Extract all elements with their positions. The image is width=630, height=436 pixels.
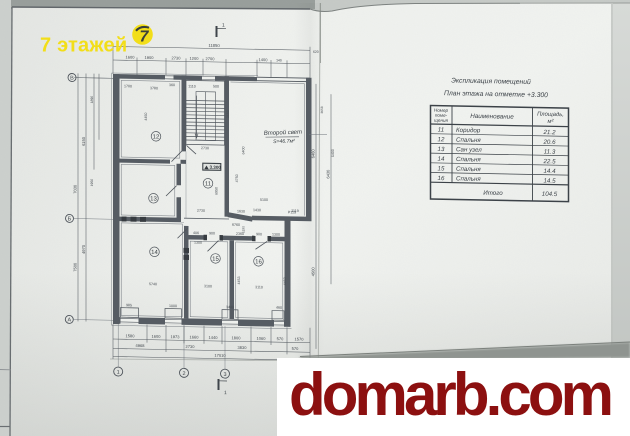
svg-text:5740: 5740: [149, 282, 157, 286]
svg-text:2: 2: [182, 371, 185, 377]
svg-text:2360: 2360: [236, 232, 244, 236]
svg-text:500: 500: [213, 84, 219, 88]
svg-text:1600: 1600: [152, 334, 162, 339]
svg-text:1660: 1660: [190, 334, 200, 339]
svg-text:Коридор: Коридор: [456, 127, 481, 134]
svg-text:3830: 3830: [238, 345, 248, 350]
svg-text:4450: 4450: [283, 277, 287, 285]
svg-text:6150: 6150: [81, 136, 86, 146]
svg-text:11850: 11850: [208, 43, 220, 48]
svg-text:В: В: [70, 75, 74, 81]
svg-text:7: 7: [140, 29, 150, 46]
svg-text:620: 620: [313, 50, 319, 54]
svg-text:Второй свет: Второй свет: [264, 129, 303, 137]
svg-text:domarb.com: domarb.com: [289, 361, 611, 428]
svg-text:14.5: 14.5: [543, 178, 556, 185]
svg-text:16: 16: [438, 175, 445, 182]
svg-text:1440: 1440: [209, 335, 219, 340]
svg-text:1000: 1000: [169, 304, 177, 308]
svg-text:Площадь,: Площадь,: [537, 112, 564, 119]
svg-text:3100: 3100: [204, 284, 212, 288]
svg-text:4453: 4453: [237, 276, 241, 284]
svg-text:22.5: 22.5: [542, 158, 556, 165]
svg-text:2730: 2730: [186, 344, 196, 349]
svg-text:Спальня: Спальня: [456, 166, 481, 173]
svg-text:900: 900: [256, 232, 262, 236]
svg-text:3110: 3110: [255, 285, 263, 289]
svg-text:570: 570: [277, 336, 284, 341]
svg-text:1060: 1060: [257, 336, 267, 341]
svg-text:6400: 6400: [331, 149, 335, 157]
svg-text:7030: 7030: [73, 184, 78, 194]
svg-text:2730: 2730: [201, 146, 209, 150]
svg-text:4450: 4450: [144, 113, 148, 121]
svg-text:4500: 4500: [311, 267, 316, 277]
svg-text:1430: 1430: [253, 208, 261, 212]
svg-text:7500: 7500: [73, 262, 78, 272]
svg-text:5100: 5100: [260, 198, 268, 202]
svg-text:6760: 6760: [232, 223, 240, 227]
svg-text:3780: 3780: [150, 86, 158, 90]
svg-text:13: 13: [438, 146, 445, 153]
svg-text:7 этажей: 7 этажей: [40, 35, 127, 57]
svg-text:Итого: Итого: [483, 190, 503, 197]
svg-text:1900: 1900: [145, 55, 155, 60]
svg-text:2730: 2730: [197, 209, 205, 213]
svg-text:460: 460: [276, 306, 282, 310]
svg-text:2730: 2730: [172, 55, 182, 60]
svg-text:1200: 1200: [190, 56, 200, 61]
svg-text:S=46.7м²: S=46.7м²: [273, 138, 295, 145]
svg-text:Спальня: Спальня: [456, 137, 481, 144]
svg-text:4968: 4968: [136, 343, 146, 348]
svg-text:1973: 1973: [171, 334, 181, 339]
svg-text:20.6: 20.6: [542, 139, 556, 146]
svg-text:1119: 1119: [291, 209, 298, 213]
svg-text:Спальня: Спальня: [456, 175, 481, 182]
svg-text:1890: 1890: [90, 96, 94, 104]
svg-text:1: 1: [222, 23, 225, 29]
svg-text:13: 13: [150, 196, 157, 202]
svg-text:4750: 4750: [235, 174, 239, 182]
svg-text:1300: 1300: [194, 241, 202, 245]
svg-text:900: 900: [209, 231, 215, 235]
svg-text:1950: 1950: [90, 179, 94, 187]
svg-text:1630: 1630: [237, 209, 245, 213]
svg-text:Спальня: Спальня: [456, 156, 481, 163]
svg-text:16: 16: [255, 259, 262, 265]
svg-text:15: 15: [212, 257, 219, 263]
svg-text:406: 406: [193, 231, 199, 235]
svg-text:11: 11: [205, 181, 212, 187]
svg-text:14: 14: [151, 250, 158, 256]
svg-text:1570: 1570: [295, 336, 305, 341]
svg-text:Сан узел: Сан узел: [456, 146, 482, 154]
svg-text:А: А: [67, 317, 71, 323]
svg-text:1: 1: [224, 390, 227, 396]
svg-text:15: 15: [438, 165, 445, 172]
svg-text:12: 12: [153, 134, 160, 140]
svg-text:2700: 2700: [206, 56, 216, 61]
svg-text:1: 1: [117, 370, 120, 376]
svg-text:Экспликация помещений: Экспликация помещений: [451, 76, 531, 86]
svg-text:570: 570: [292, 346, 299, 351]
svg-text:140: 140: [276, 58, 282, 62]
svg-text:3650: 3650: [226, 110, 230, 118]
svg-text:14: 14: [438, 156, 445, 163]
svg-text:11.3: 11.3: [544, 148, 556, 155]
svg-text:1110: 1110: [188, 84, 195, 88]
svg-text:360: 360: [169, 83, 175, 87]
svg-text:Наименование: Наименование: [470, 113, 514, 121]
svg-text:1700: 1700: [124, 84, 132, 88]
svg-text:11: 11: [438, 127, 444, 134]
svg-text:Б: Б: [68, 216, 72, 222]
svg-text:21.2: 21.2: [542, 129, 556, 136]
svg-text:3658: 3658: [320, 106, 324, 113]
svg-text:104.5: 104.5: [542, 191, 558, 198]
svg-text:3.300: 3.300: [209, 165, 221, 170]
svg-text:985: 985: [126, 303, 132, 307]
svg-text:12: 12: [438, 136, 445, 143]
svg-text:17010: 17010: [214, 353, 226, 358]
svg-text:1400: 1400: [259, 57, 269, 62]
svg-text:6400: 6400: [242, 146, 246, 154]
svg-text:1580: 1580: [126, 333, 136, 338]
svg-text:3: 3: [223, 372, 226, 378]
svg-text:6950: 6950: [215, 187, 219, 195]
svg-text:1300: 1300: [272, 233, 280, 237]
svg-text:1800: 1800: [232, 335, 242, 340]
svg-text:4970: 4970: [81, 244, 86, 254]
svg-text:1440: 1440: [226, 305, 234, 309]
svg-text:6430: 6430: [326, 169, 331, 179]
svg-text:14.4: 14.4: [543, 168, 556, 175]
svg-text:щения: щения: [434, 118, 449, 123]
